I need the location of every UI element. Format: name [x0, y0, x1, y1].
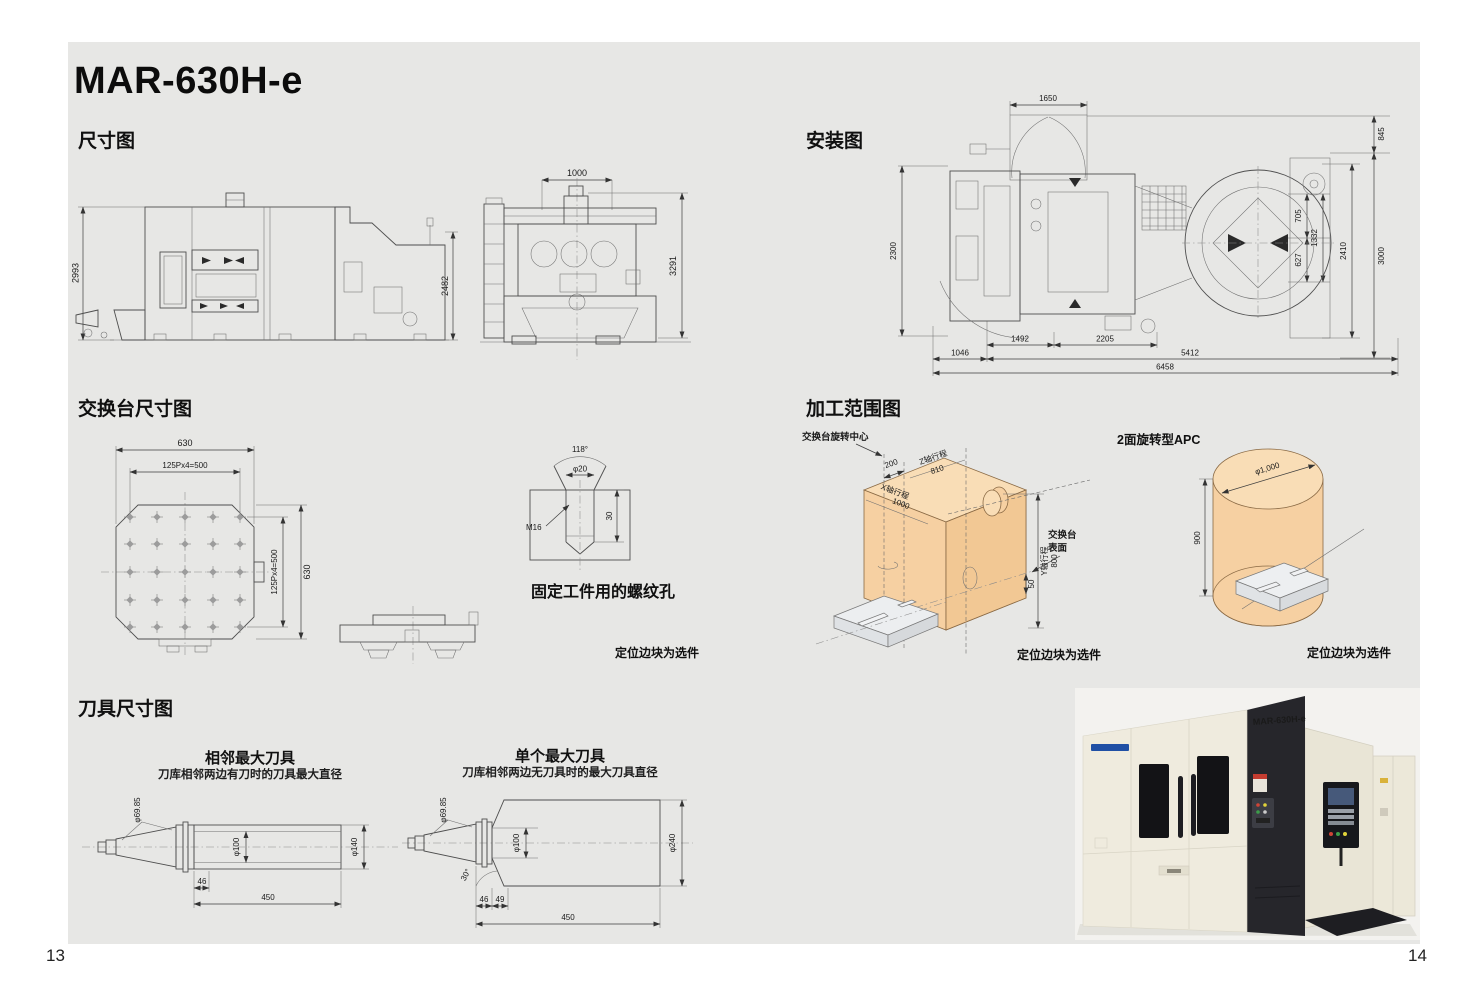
pallet-side-outline [340, 606, 478, 664]
door-handle-right [1191, 774, 1196, 836]
pallet-outline [101, 492, 271, 658]
screw-thread-label: M16 [526, 523, 542, 532]
tool2-title: 单个最大刀具 [420, 745, 700, 766]
brand-logo [1091, 744, 1129, 751]
machine-window-right [1197, 756, 1229, 834]
machine-photo-column: MAR-630H-e [1247, 696, 1306, 936]
screw-hole-detail-drawing: 118° φ20 30 M16 [518, 442, 653, 582]
tool2-49-dim: 49 [496, 895, 505, 904]
tool2-angle-dim: 30° [459, 867, 473, 882]
pallet-top-view-drawing: 630 125Px4=500 125Px4=500 630 [95, 430, 330, 680]
product-photo: MAR-630H-e [1075, 688, 1420, 940]
machine-photo-back-unit [1305, 728, 1373, 928]
pallet-right-height-dim: 630 [302, 564, 312, 579]
install-top-width-dim: 1650 [1039, 94, 1057, 103]
tool2-core-dia-dim: φ100 [512, 833, 521, 852]
machine-side-outline [76, 193, 449, 340]
front-top-width-dim: 1000 [567, 168, 587, 178]
machining-range-drawing: 交换台旋转中心 200 Z轴行程 810 X轴行程 1000 Y轴行程 800 … [798, 418, 1098, 673]
screw-hole-caption: 固定工件用的螺纹孔 [531, 578, 675, 602]
tool1-taper-dia-dim: φ69.85 [133, 797, 142, 823]
tool2-drawing: φ69.85 30° φ100 φ240 46 49 450 [398, 782, 698, 942]
tool1-450-dim: 450 [261, 893, 275, 902]
apc-cylinder-drawing: φ1,000 900 [1196, 441, 1371, 661]
page-title: MAR-630H-e [74, 60, 303, 103]
install-1492-dim: 1492 [1011, 335, 1029, 344]
pallet-side-view-drawing [335, 602, 485, 667]
install-2205-dim: 2205 [1096, 335, 1114, 344]
screw-diameter-dim: φ20 [573, 465, 588, 474]
pallet-top-width-dim: 630 [177, 438, 192, 448]
tool1-title: 相邻最大刀具 [95, 747, 405, 768]
optional-note-1: 定位边块为选件 [615, 644, 699, 661]
tool1-core-dia-dim: φ100 [232, 837, 241, 856]
tool2-taper-dia-dim: φ69.85 [439, 797, 448, 823]
installation-plan-outline [940, 144, 1336, 338]
install-627-dim: 627 [1294, 253, 1303, 267]
table-surface-label-1: 交换台 [1048, 529, 1077, 541]
screw-depth-dim: 30 [605, 511, 614, 520]
screw-angle-dim: 118° [572, 445, 588, 454]
apc-type-label: 2面旋转型APC [1117, 429, 1200, 448]
pallet-right-pitch-dim: 125Px4=500 [270, 549, 279, 595]
tool2-46-dim: 46 [480, 895, 489, 904]
section-heading-range: 加工范围图 [806, 394, 901, 421]
install-3000-dim: 3000 [1377, 247, 1386, 265]
section-heading-pallet: 交换台尺寸图 [78, 394, 192, 421]
section-heading-dimensions: 尺寸图 [78, 126, 135, 153]
tool1-46-dim: 46 [198, 877, 207, 886]
install-845-dim: 845 [1377, 127, 1386, 141]
install-705-dim: 705 [1294, 209, 1303, 223]
install-5412-dim: 5412 [1181, 349, 1199, 358]
machine-window-left [1139, 764, 1169, 838]
machine-side-view-drawing: 2993 2482 [74, 167, 469, 362]
catalog-page: MAR-630H-e 尺寸图 安装图 交换台尺寸图 加工范围图 刀具尺寸图 29… [0, 0, 1476, 1008]
tool1-drawing: φ69.85 φ100 φ140 46 450 [76, 784, 406, 929]
section-heading-tools: 刀具尺寸图 [78, 694, 173, 721]
machine-front-view-drawing: 1000 3291 [476, 162, 716, 367]
page-number-right: 14 [1408, 946, 1427, 966]
tool1-subtitle: 刀库相邻两边有刀时的刀具最大直径 [95, 766, 405, 782]
rotation-center-label: 交换台旋转中心 [802, 431, 869, 443]
tool2-outer-dia-dim: φ240 [668, 833, 677, 852]
apc-height-dim: 900 [1193, 531, 1202, 545]
section-heading-installation: 安装图 [806, 126, 863, 153]
range-200-dim: 200 [883, 457, 899, 470]
range-50-dim: 50 [1027, 579, 1036, 588]
front-right-height-dim: 3291 [668, 256, 678, 276]
install-2410-dim: 2410 [1339, 242, 1348, 260]
page-number-left: 13 [46, 946, 65, 966]
machine-front-outline [480, 178, 691, 360]
install-6458-dim: 6458 [1156, 363, 1174, 372]
table-surface-label-2: 表面 [1047, 542, 1068, 554]
install-2300-dim: 2300 [889, 242, 898, 260]
tool1-outer-dia-dim: φ140 [350, 837, 359, 856]
pallet-top-pitch-dim: 125Px4=500 [162, 461, 208, 470]
install-1332-dim: 1332 [1310, 229, 1319, 247]
install-1046-dim: 1046 [951, 349, 969, 358]
door-handle-left [1178, 776, 1183, 838]
tool2-450-dim: 450 [561, 913, 575, 922]
machine-photo-front [1083, 710, 1247, 932]
apc-cylinder-outline [1213, 449, 1364, 626]
side-left-height-dim: 2993 [71, 263, 81, 283]
tool2-subtitle: 刀库相邻两边无刀具时的最大刀具直径 [420, 764, 700, 780]
installation-plan-drawing: 1650 845 3000 2410 705 627 1332 2300 149… [890, 86, 1415, 386]
screw-hole-outline [530, 457, 630, 570]
machine-photo-right-cabinet [1373, 756, 1415, 916]
